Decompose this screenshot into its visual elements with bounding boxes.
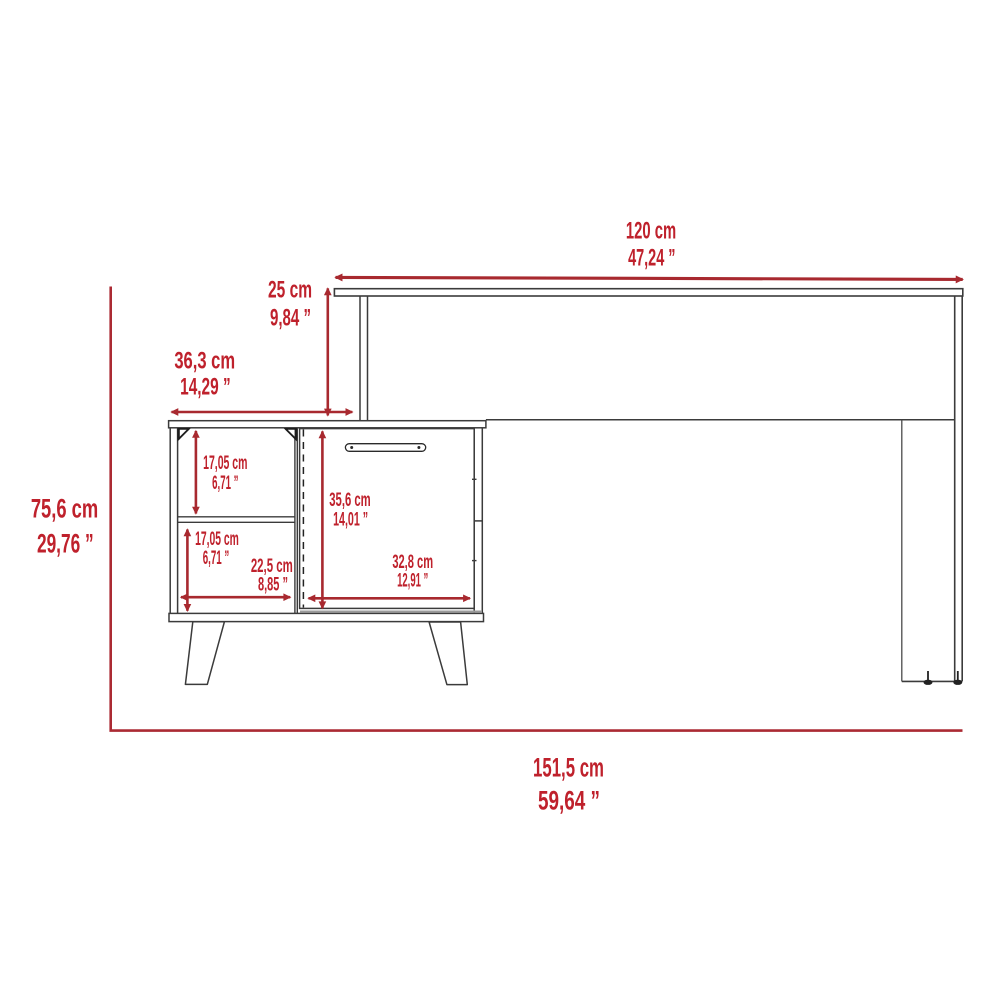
svg-text:14,01 ”: 14,01 ” [333, 509, 368, 530]
svg-text:59,64 ”: 59,64 ” [538, 785, 600, 815]
svg-text:75,6 cm: 75,6 cm [31, 493, 98, 523]
svg-text:12,91 ”: 12,91 ” [397, 570, 428, 591]
svg-text:151,5 cm: 151,5 cm [533, 752, 604, 782]
svg-text:14,29 ”: 14,29 ” [180, 374, 230, 400]
svg-text:6,71 ”: 6,71 ” [203, 548, 230, 569]
svg-text:36,3 cm: 36,3 cm [174, 348, 235, 375]
svg-text:120 cm: 120 cm [626, 218, 676, 244]
svg-text:25 cm: 25 cm [268, 277, 312, 303]
svg-text:17,05 cm: 17,05 cm [203, 453, 247, 474]
svg-text:6,71 ”: 6,71 ” [212, 472, 238, 493]
svg-text:47,24 ”: 47,24 ” [628, 245, 675, 272]
svg-text:9,84 ”: 9,84 ” [270, 305, 311, 331]
svg-text:35,6 cm: 35,6 cm [329, 490, 370, 511]
svg-text:8,85 ”: 8,85 ” [258, 574, 288, 595]
svg-text:29,76 ”: 29,76 ” [37, 528, 94, 559]
